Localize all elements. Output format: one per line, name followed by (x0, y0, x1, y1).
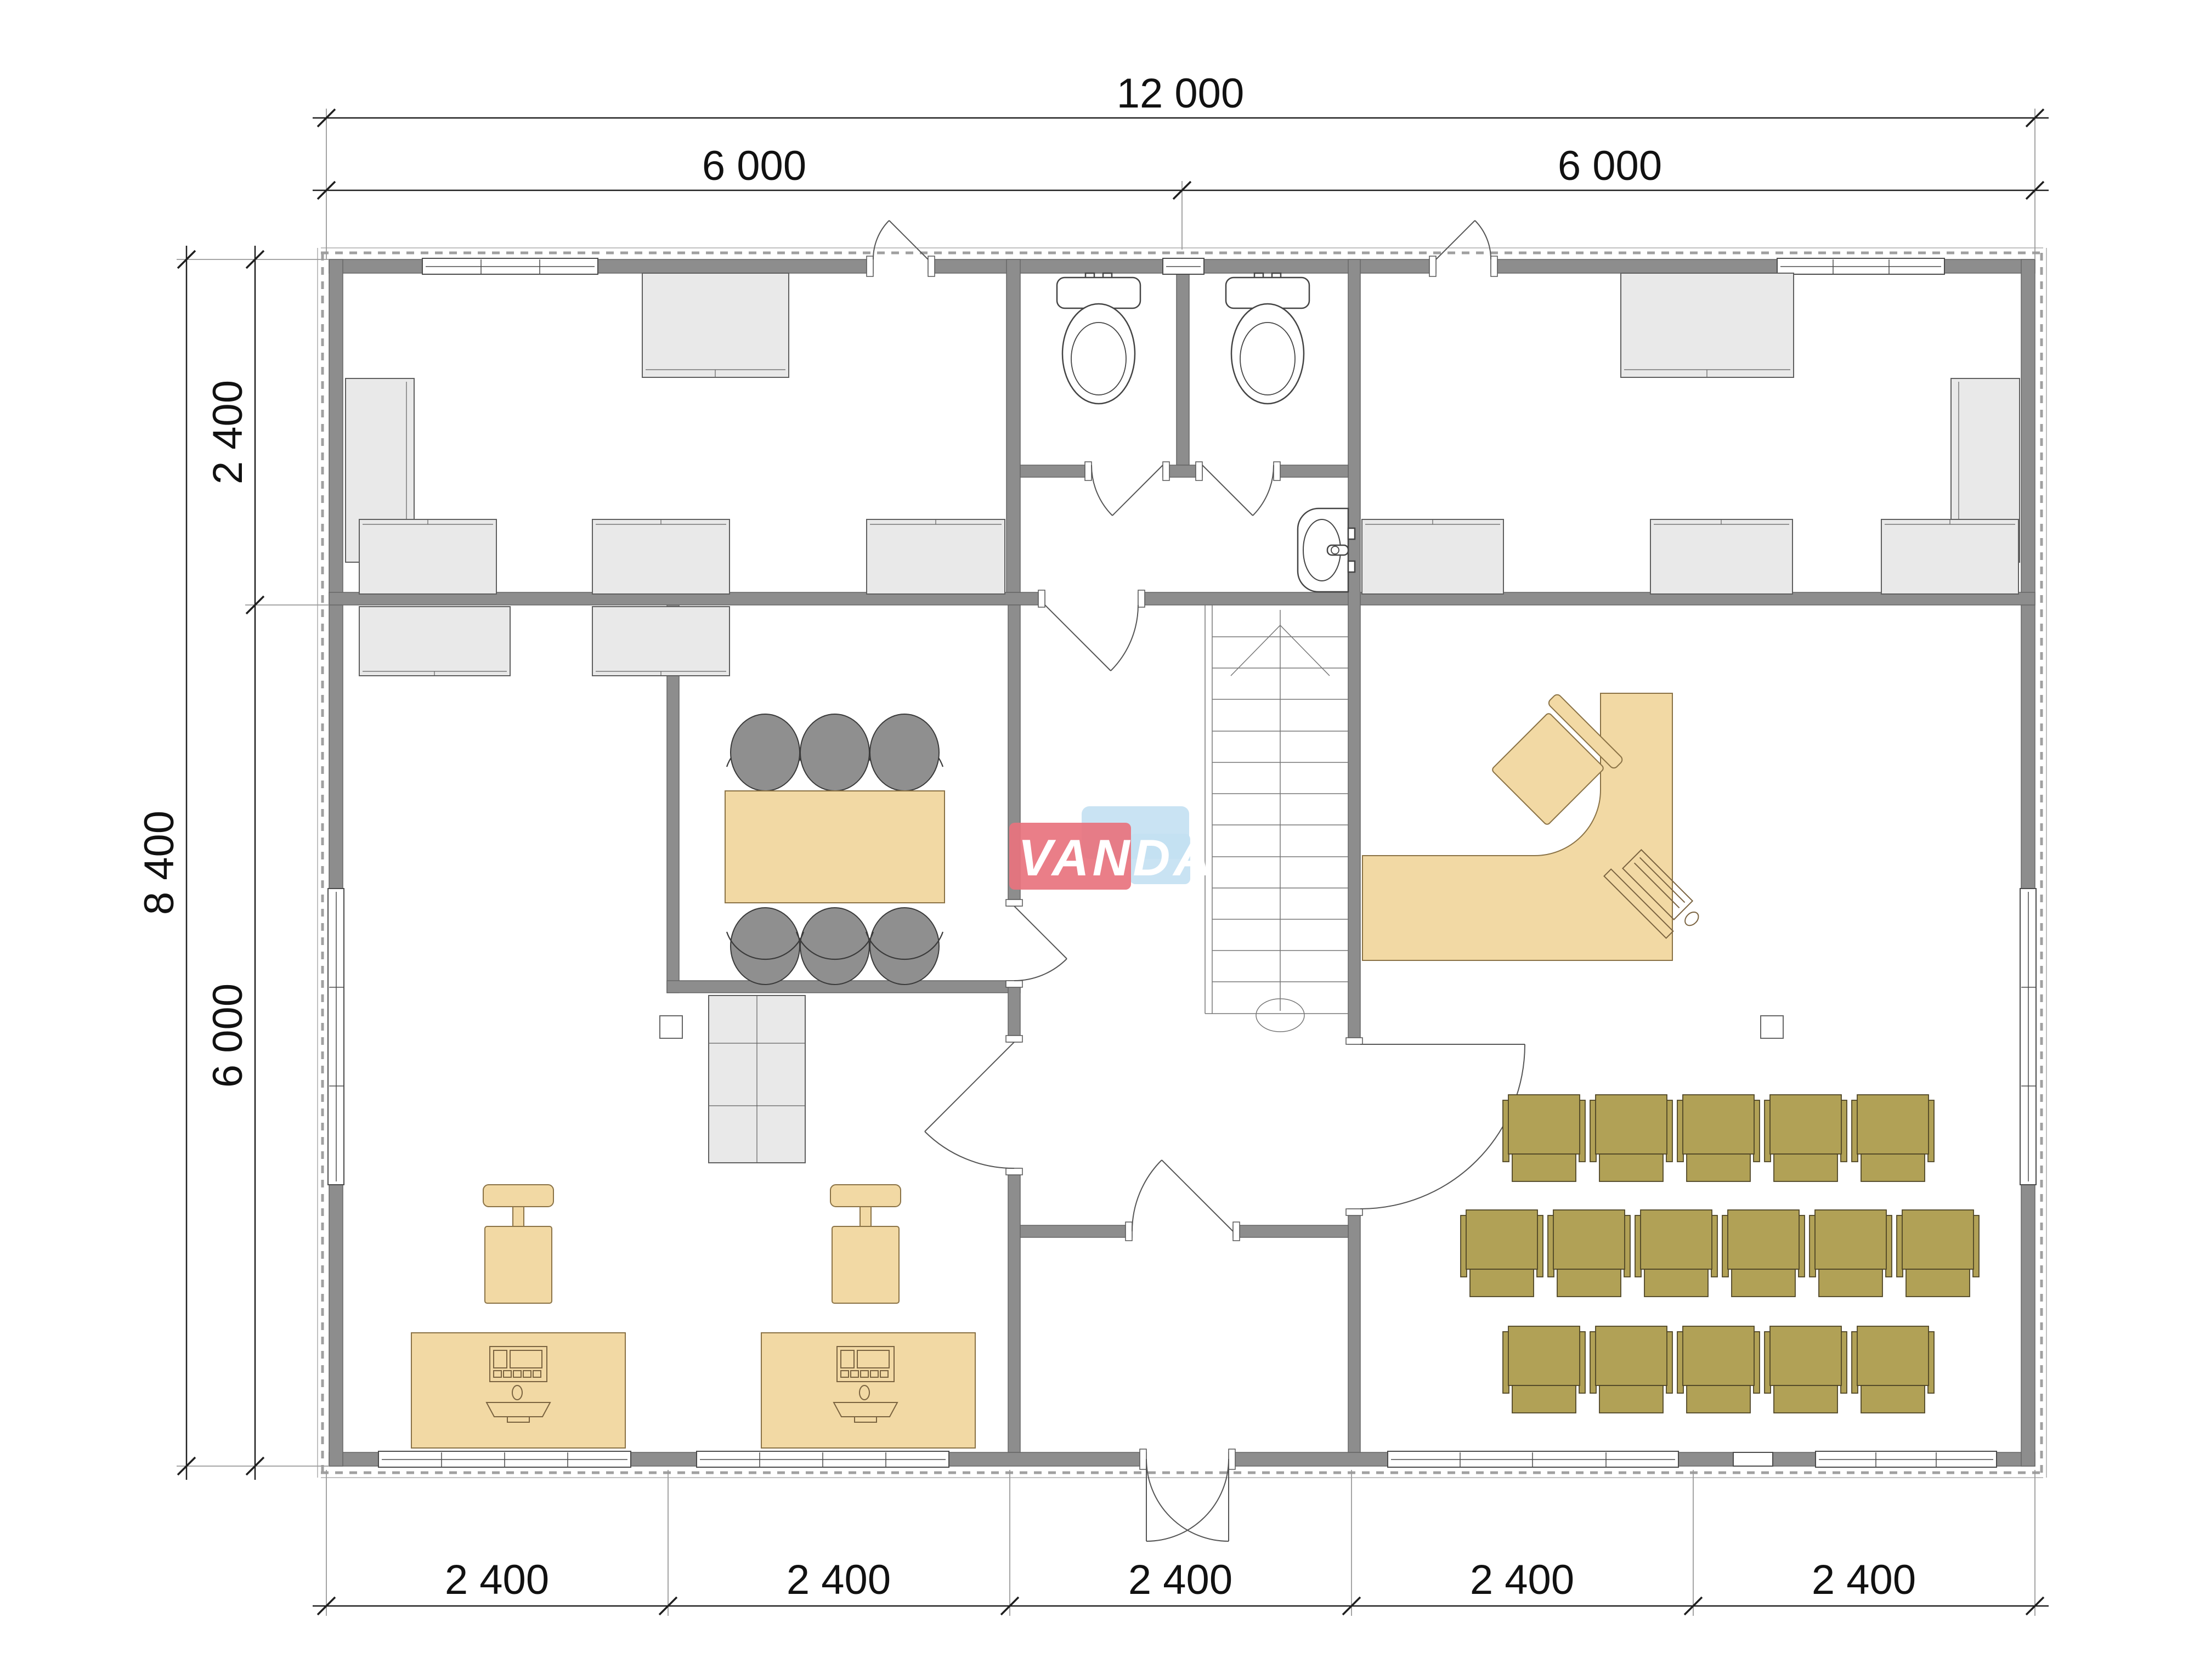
seminar-chair (1503, 1326, 1585, 1413)
dim-label-side-upper: 2 400 (205, 380, 251, 484)
storage-cabinet (592, 607, 730, 676)
conference-chair (800, 714, 869, 791)
storage-cabinet (1650, 519, 1792, 594)
storage-cabinet (1621, 273, 1794, 377)
dim-label-bottom-3: 2 400 (1128, 1557, 1232, 1603)
seminar-chair (1677, 1095, 1760, 1181)
desk-chair (483, 1185, 553, 1303)
meeting-room-furniture (725, 714, 945, 985)
left-office-door (925, 1042, 1014, 1168)
wc-door-right (1202, 465, 1274, 516)
staircase (1205, 605, 1348, 1032)
storage-cabinet (359, 607, 510, 676)
conference-chair (870, 908, 939, 985)
dim-label-bottom-4: 2 400 (1470, 1557, 1574, 1603)
seminar-chair (1765, 1326, 1847, 1413)
dim-label-bottom-1: 2 400 (445, 1557, 549, 1603)
seminar-chair (1635, 1210, 1717, 1297)
watermark: VANDA (1009, 806, 1214, 890)
storage-cabinet (1362, 519, 1503, 594)
storage-cabinet (592, 519, 730, 594)
dim-label-side-total: 8 400 (136, 811, 183, 915)
wc-door-left (1092, 465, 1163, 516)
window (2020, 889, 2036, 1185)
seminar-chair (1810, 1210, 1892, 1297)
desk-chair (830, 1185, 901, 1303)
toilet-icon (1226, 273, 1309, 404)
window (422, 258, 598, 274)
dim-label-top-left: 6 000 (702, 143, 806, 189)
seminar-chair (1677, 1326, 1760, 1413)
window (328, 889, 344, 1185)
shelving-unit (709, 995, 805, 1163)
conference-chair (731, 714, 800, 791)
seminar-chair (1852, 1326, 1934, 1413)
window-small (1163, 258, 1204, 274)
column-marker (1761, 1016, 1783, 1038)
wc-fixtures (1057, 273, 1355, 592)
window (697, 1451, 949, 1467)
seminar-chair-rows (1461, 1095, 1979, 1413)
storage-cabinet (867, 519, 1005, 594)
main-entrance-double-door (1146, 1459, 1229, 1541)
seminar-chair (1548, 1210, 1630, 1297)
floor-plan: 12 000 6 000 6 000 8 400 2 400 6 000 2 4… (0, 0, 2194, 1680)
window (378, 1451, 631, 1467)
workstations (411, 1185, 975, 1448)
hall-door (1045, 605, 1138, 671)
dim-label-top-right: 6 000 (1558, 143, 1662, 189)
conference-chair (870, 714, 939, 791)
watermark-text: VANDA (1018, 829, 1214, 886)
conference-chair (800, 908, 869, 985)
storage-cabinet (359, 519, 496, 594)
seminar-chair (1590, 1095, 1672, 1181)
seminar-room-door (1360, 1044, 1525, 1209)
service-hatch (1733, 1452, 1773, 1466)
vestibule-door (1132, 1160, 1233, 1231)
reception-desk (1362, 693, 1672, 960)
toilet-icon (1057, 273, 1140, 404)
reception-area (1362, 693, 1705, 960)
seminar-chair (1765, 1095, 1847, 1181)
window (1777, 258, 1944, 274)
seminar-chair (1461, 1210, 1543, 1297)
seminar-chair (1722, 1210, 1805, 1297)
storage-cabinet (1881, 519, 2018, 594)
window (1816, 1451, 1997, 1467)
seminar-chair (1503, 1095, 1585, 1181)
seminar-chair (1897, 1210, 1979, 1297)
meeting-table (725, 791, 945, 903)
conference-chair (731, 908, 800, 985)
dim-label-bottom-5: 2 400 (1812, 1557, 1916, 1603)
dim-label-top-total: 12 000 (1117, 70, 1244, 117)
sink-icon (1298, 508, 1355, 592)
meeting-room-door (1014, 906, 1067, 981)
column-marker (660, 1016, 682, 1038)
dim-label-bottom-2: 2 400 (787, 1557, 891, 1603)
seminar-chair (1590, 1326, 1672, 1413)
window (1388, 1451, 1678, 1467)
dim-label-side-lower: 6 000 (205, 983, 251, 1088)
seminar-chair (1852, 1095, 1934, 1181)
floor-plan-page: 12 000 6 000 6 000 8 400 2 400 6 000 2 4… (0, 0, 2194, 1680)
storage-cabinet (642, 273, 789, 377)
